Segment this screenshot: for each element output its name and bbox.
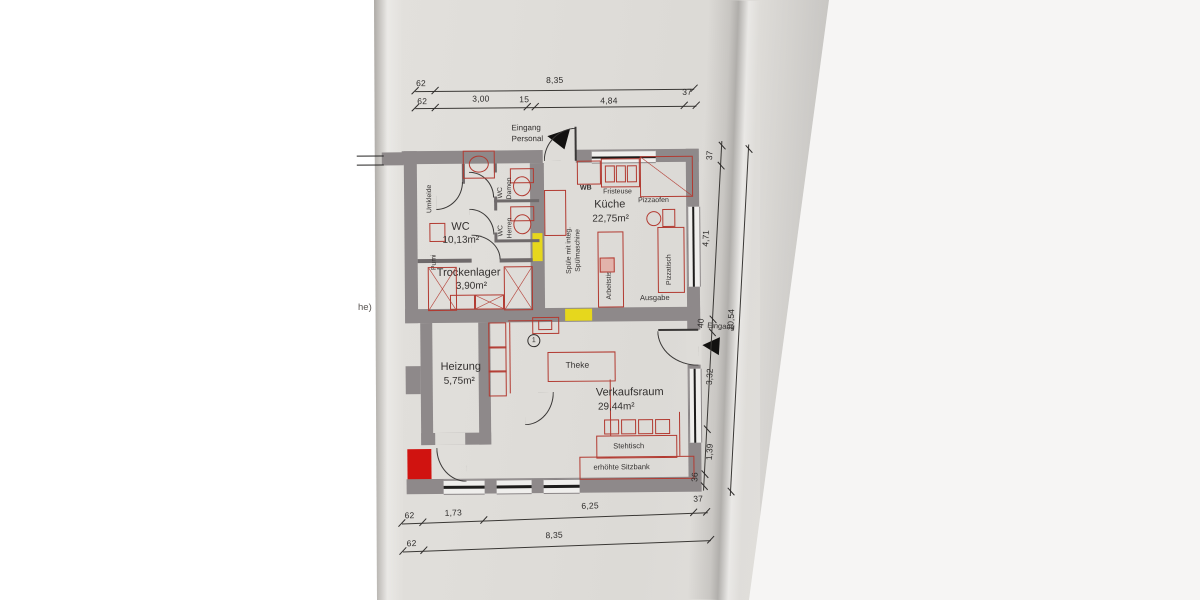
dim-label: 1,73 xyxy=(444,507,462,518)
dim-label: 3,32 xyxy=(704,368,715,385)
dim-label: 36 xyxy=(689,472,699,482)
photo-of-floor-plan: he) 62 8,35 62 3,00 15 4,84 37 Eingang P… xyxy=(0,0,1200,600)
dim-label: 6,25 xyxy=(581,500,599,511)
dim-label: 37 xyxy=(704,150,714,160)
dim-label: 62 xyxy=(406,538,416,548)
dim-label: 10,54 xyxy=(725,309,736,331)
dim-label: 8,35 xyxy=(545,530,563,541)
dim-label: 4,71 xyxy=(700,230,711,247)
dim-line xyxy=(403,540,711,552)
dim-tick xyxy=(703,508,711,516)
bottom-dimensions: 62 1,73 6,25 37 62 8,35 xyxy=(0,0,1200,600)
floor-plan: 62 8,35 62 3,00 15 4,84 37 Eingang Perso… xyxy=(0,0,1200,600)
dim-line xyxy=(703,141,722,491)
dim-tick xyxy=(707,536,715,544)
dim-label: 62 xyxy=(404,510,414,520)
dim-label: 1,39 xyxy=(704,443,715,460)
dim-label: 40 xyxy=(695,318,705,328)
